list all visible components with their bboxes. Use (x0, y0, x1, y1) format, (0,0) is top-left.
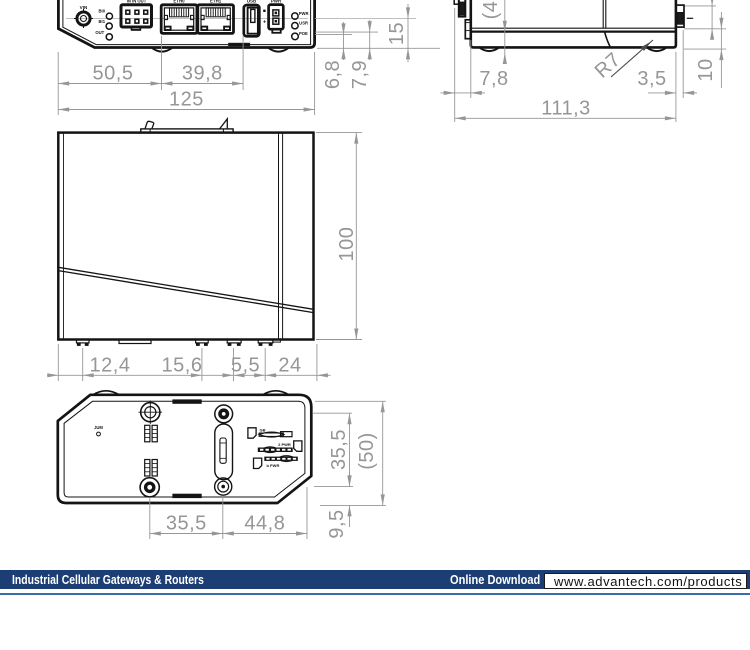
svg-text:100: 100 (336, 227, 358, 262)
svg-text:35,5: 35,5 (328, 429, 350, 470)
svg-text:ETH1: ETH1 (210, 0, 222, 4)
svg-text:(50): (50) (356, 432, 378, 470)
svg-text:USB: USB (247, 0, 256, 4)
svg-text:12,4: 12,4 (90, 354, 131, 376)
svg-text:50,5: 50,5 (93, 63, 134, 85)
svg-text:10: 10 (695, 58, 717, 81)
svg-text:R7: R7 (591, 48, 625, 82)
svg-text:USR: USR (299, 21, 308, 26)
svg-text:PWR: PWR (299, 11, 309, 16)
svg-text:111,3: 111,3 (541, 97, 591, 119)
svg-text:POE: POE (299, 31, 308, 36)
svg-text:b PWR: b PWR (266, 463, 279, 468)
svg-text:JUM: JUM (94, 425, 103, 430)
svg-text:ETH0: ETH0 (173, 0, 185, 4)
svg-text:7,9: 7,9 (349, 60, 371, 89)
svg-text:IN IN OUT: IN IN OUT (127, 0, 147, 4)
svg-text:GB: GB (260, 428, 266, 433)
svg-text:9,5: 9,5 (326, 509, 348, 538)
svg-text:(4: (4 (480, 1, 502, 20)
svg-text:125: 125 (169, 89, 204, 111)
svg-text:BI0: BI0 (99, 9, 106, 14)
svg-text:35,5: 35,5 (166, 513, 207, 535)
svg-text:6,8: 6,8 (322, 60, 344, 89)
svg-text:2 PWR: 2 PWR (278, 442, 291, 447)
svg-text:24: 24 (278, 354, 301, 376)
svg-text:+: + (263, 20, 266, 26)
svg-text:39,8: 39,8 (182, 63, 223, 85)
svg-text:44,8: 44,8 (244, 513, 285, 535)
svg-text:PWR: PWR (271, 0, 282, 4)
svg-text:3,5: 3,5 (637, 68, 666, 90)
svg-text:OUT: OUT (95, 30, 104, 35)
svg-text:BI1: BI1 (99, 19, 106, 24)
svg-text:15,6: 15,6 (162, 354, 203, 376)
svg-text:15: 15 (386, 22, 408, 45)
svg-text:7,8: 7,8 (479, 68, 508, 90)
svg-text:VIN: VIN (80, 5, 88, 10)
svg-text:5,5: 5,5 (231, 354, 260, 376)
